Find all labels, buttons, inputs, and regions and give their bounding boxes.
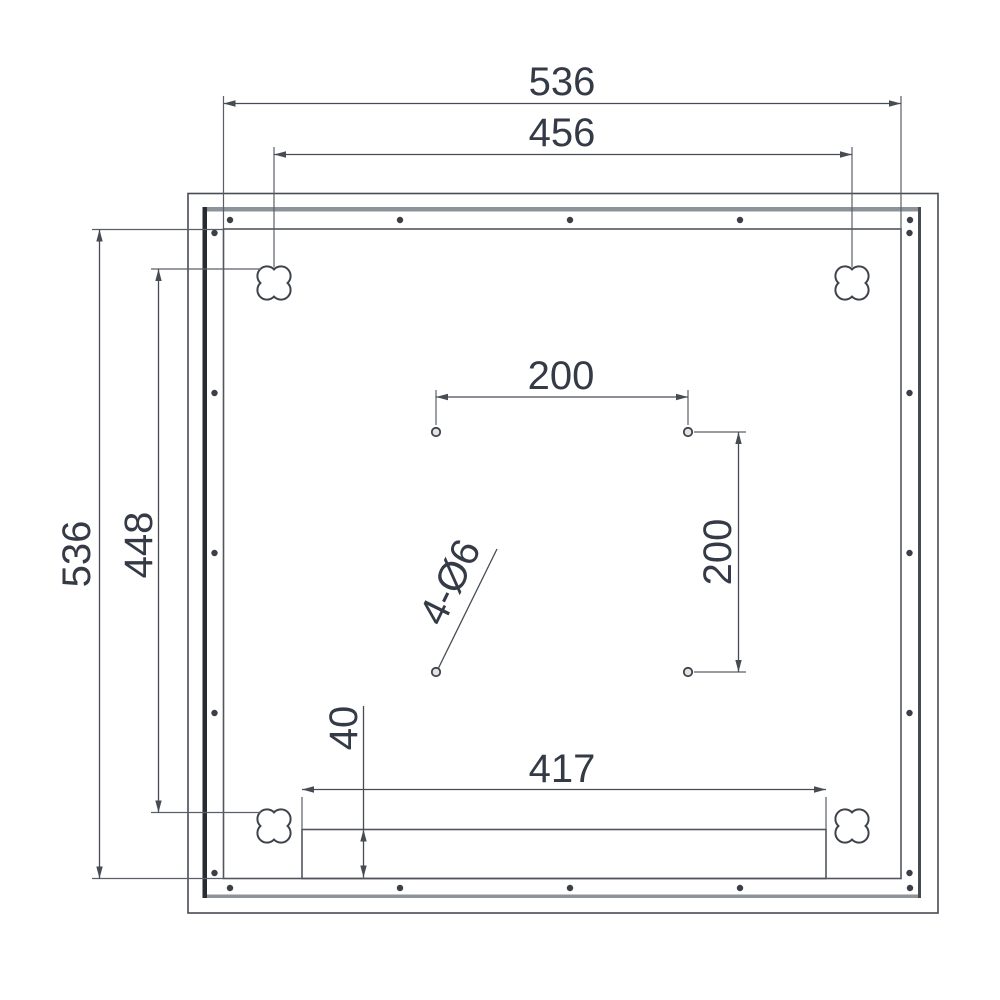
bracket-hole-top-left [432,428,440,436]
dimension-label-keyhole-span-height: 448 [117,512,161,579]
inner-frame-bottom-edge [203,895,922,899]
dimension-label-overall-width: 536 [529,60,596,104]
bottom-slot [302,830,826,879]
callout-hole-diameter: 4-Ø6 [411,533,497,669]
dimension-slot-height: 40 [322,706,366,878]
screw-hole [906,390,912,396]
keyhole-top-left [257,266,290,299]
dimensions: 536 456 536 448 200 [55,60,901,879]
screw-hole [906,870,912,876]
panel-dimension-drawing: 536 456 536 448 200 [0,0,1000,1000]
screw-hole [211,710,217,716]
screw-hole [907,217,913,223]
dimension-keyhole-span-width: 456 [274,111,852,267]
dimension-label-overall-height: 536 [55,521,99,588]
screw-hole [567,217,573,223]
screw-hole [906,550,912,556]
screw-hole [737,885,743,891]
screw-hole [227,217,233,223]
screw-hole [211,230,217,236]
screw-hole [211,870,217,876]
screw-hole [227,885,233,891]
callout-label-hole-diameter: 4-Ø6 [411,533,490,632]
inner-frame-top-edge [203,207,922,212]
dimension-keyhole-span-height: 448 [117,269,261,813]
dimension-label-keyhole-span-width: 456 [529,111,596,155]
keyhole-bottom-right [835,809,868,842]
screw-hole [397,217,403,223]
screw-hole [567,885,573,891]
screw-hole [906,230,912,236]
dimension-label-slot-height: 40 [322,706,366,751]
screw-hole [737,217,743,223]
dimension-slot-width: 417 [302,747,826,830]
dimension-center-holes-height: 200 [694,432,746,672]
screw-hole [211,550,217,556]
bracket-hole-bottom-left [432,668,440,676]
bracket-hole-top-right [684,428,692,436]
screw-hole [907,885,913,891]
bracket-hole-bottom-right [684,668,692,676]
keyhole-bottom-left [257,809,290,842]
screw-hole [906,710,912,716]
drawing-canvas: 536 456 536 448 200 [0,0,1000,1000]
dimension-label-center-holes-width: 200 [528,354,595,398]
keyhole-top-right [835,266,868,299]
screw-hole [211,390,217,396]
dimension-label-center-holes-height: 200 [696,519,740,586]
inner-frame-left-edge [203,207,208,898]
inner-frame-right-edge [918,207,921,898]
dimension-center-holes-width: 200 [436,354,688,425]
screw-hole [397,885,403,891]
dimension-label-slot-width: 417 [529,747,596,791]
